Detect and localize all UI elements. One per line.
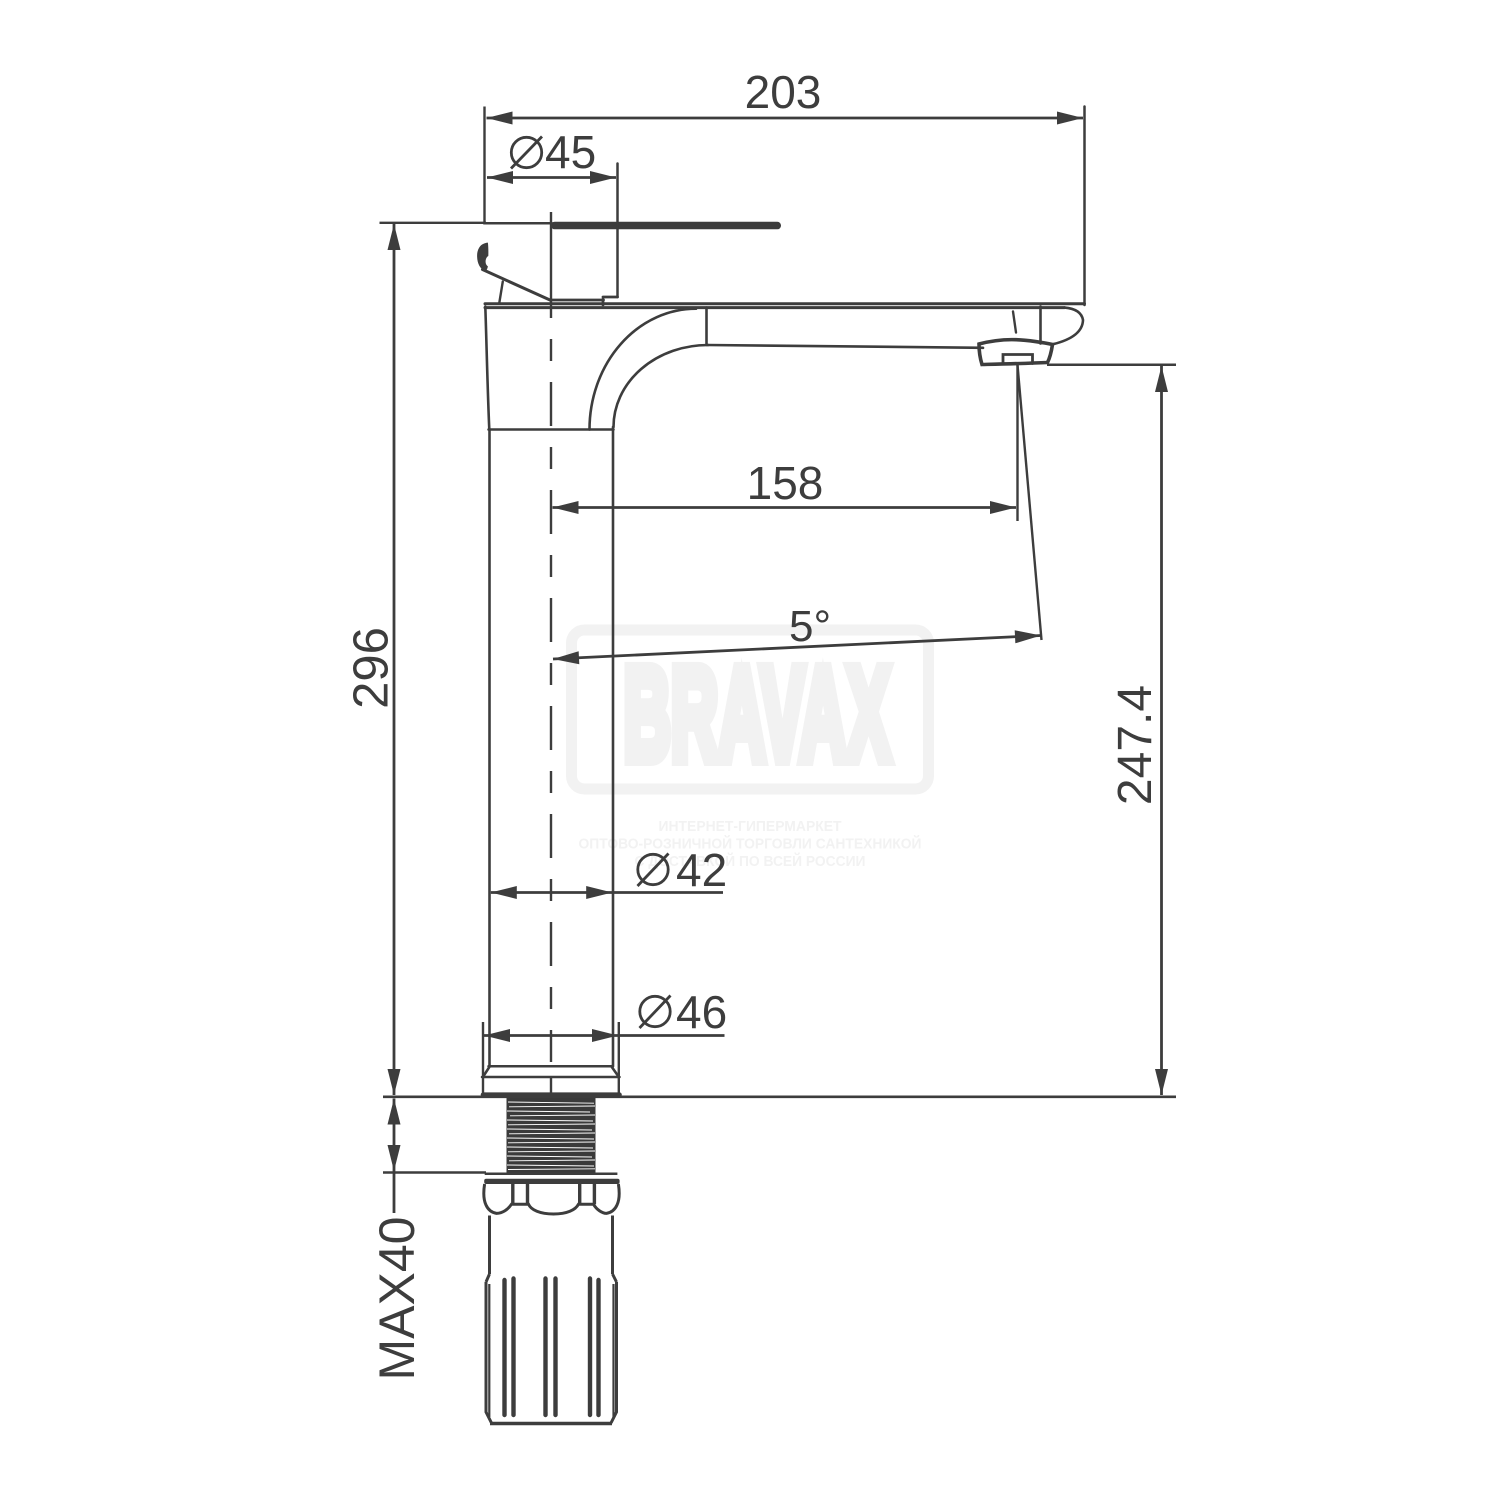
svg-text:BRAVAX: BRAVAX [624, 640, 891, 787]
svg-text:ИНТЕРНЕТ-ГИПЕРМАРКЕТ: ИНТЕРНЕТ-ГИПЕРМАРКЕТ [659, 819, 842, 835]
svg-text:296: 296 [345, 627, 399, 709]
svg-text:158: 158 [747, 457, 824, 509]
svg-text:ОПТОВО-РОЗНИЧНОЙ ТОРГОВЛИ САНТ: ОПТОВО-РОЗНИЧНОЙ ТОРГОВЛИ САНТЕХНИКОЙ [579, 835, 922, 853]
svg-text:247.4: 247.4 [1109, 685, 1162, 805]
svg-text:46: 46 [676, 986, 727, 1038]
svg-text:45: 45 [545, 126, 596, 178]
svg-text:5°: 5° [789, 602, 831, 651]
svg-text:42: 42 [676, 844, 727, 896]
svg-text:MAX40: MAX40 [369, 1217, 425, 1381]
svg-text:203: 203 [745, 66, 822, 118]
